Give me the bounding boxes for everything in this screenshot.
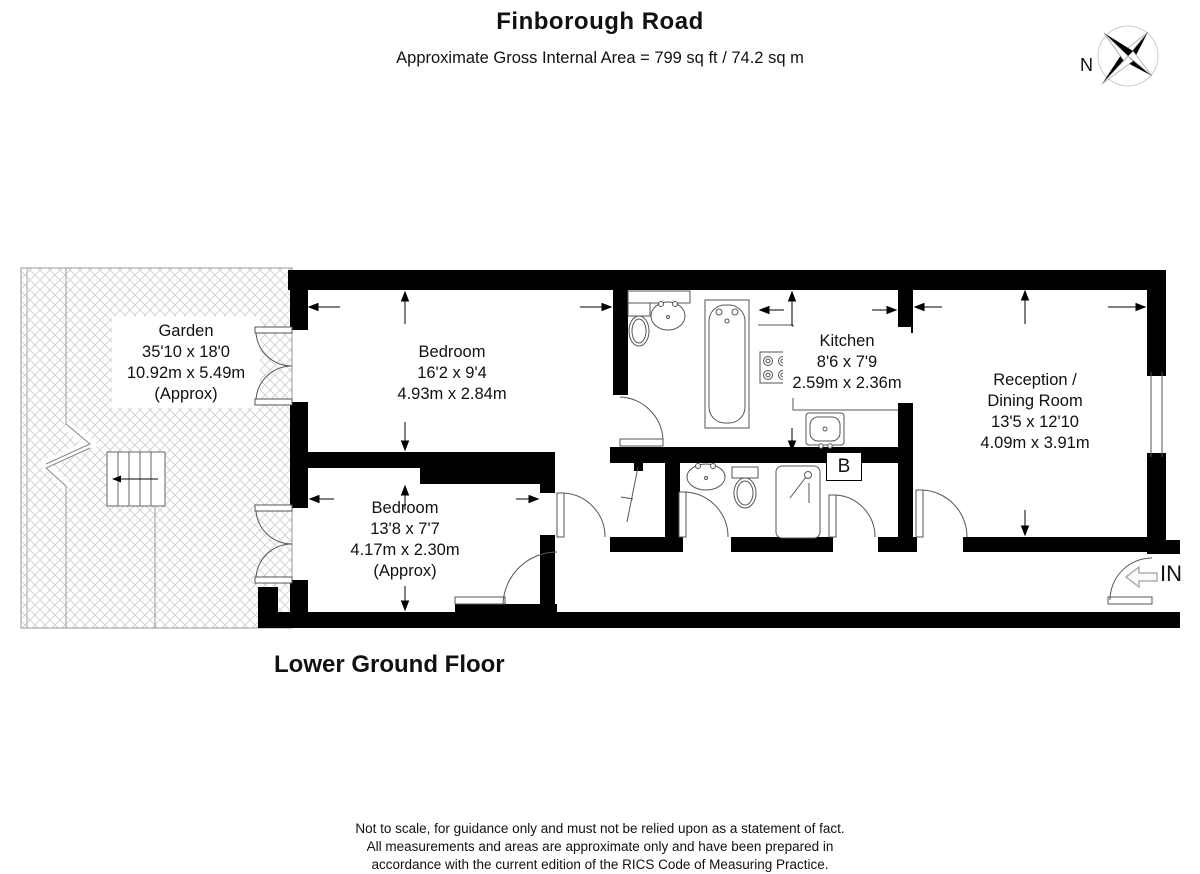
shelf	[628, 291, 690, 303]
bedroom1-label: Bedroom 16'2 x 9'4 4.93m x 2.84m	[372, 342, 532, 405]
disclaimer-line-2: All measurements and areas are approxima…	[0, 838, 1200, 856]
shower-icon	[776, 466, 820, 538]
boiler-label: B	[826, 452, 862, 481]
bedroom2-door	[557, 493, 605, 537]
window	[1147, 372, 1166, 457]
sink-icon	[806, 413, 844, 448]
reception-label: Reception / Dining Room 13'5 x 12'10 4.0…	[955, 370, 1115, 454]
bathroom2-fixtures	[687, 464, 820, 539]
boiler-cupboard-door	[829, 495, 875, 537]
compass-north-label: N	[1080, 55, 1093, 76]
kitchen-label: Kitchen 8'6 x 7'9 2.59m x 2.36m	[782, 331, 912, 394]
basin-icon	[687, 464, 725, 491]
disclaimer-line-1: Not to scale, for guidance only and must…	[0, 820, 1200, 838]
page-title: Finborough Road	[0, 8, 1200, 36]
floor-name: Lower Ground Floor	[274, 651, 505, 679]
entrance-arrow-icon	[1126, 567, 1157, 587]
floorplan-page: Finborough Road Approximate Gross Intern…	[0, 0, 1200, 874]
bathroom1-door	[620, 397, 663, 446]
lobby-door	[621, 467, 638, 522]
reception-door	[916, 490, 967, 537]
disclaimer-line-3: accordance with the current edition of t…	[0, 856, 1200, 874]
basin-icon	[651, 302, 685, 331]
bedroom2-label: Bedroom 13'8 x 7'7 4.17m x 2.30m (Approx…	[325, 498, 485, 582]
garden-label: Garden 35'10 x 18'0 10.92m x 5.49m (Appr…	[112, 321, 260, 405]
entrance-label: IN	[1160, 561, 1182, 587]
disclaimer: Not to scale, for guidance only and must…	[0, 820, 1200, 874]
bathtub-icon	[705, 300, 749, 428]
page-subtitle: Approximate Gross Internal Area = 799 sq…	[0, 49, 1200, 68]
bathroom1-fixtures	[628, 291, 749, 428]
bathroom2-door	[679, 492, 728, 537]
toilet-icon	[732, 467, 758, 508]
toilet-icon	[628, 303, 650, 346]
